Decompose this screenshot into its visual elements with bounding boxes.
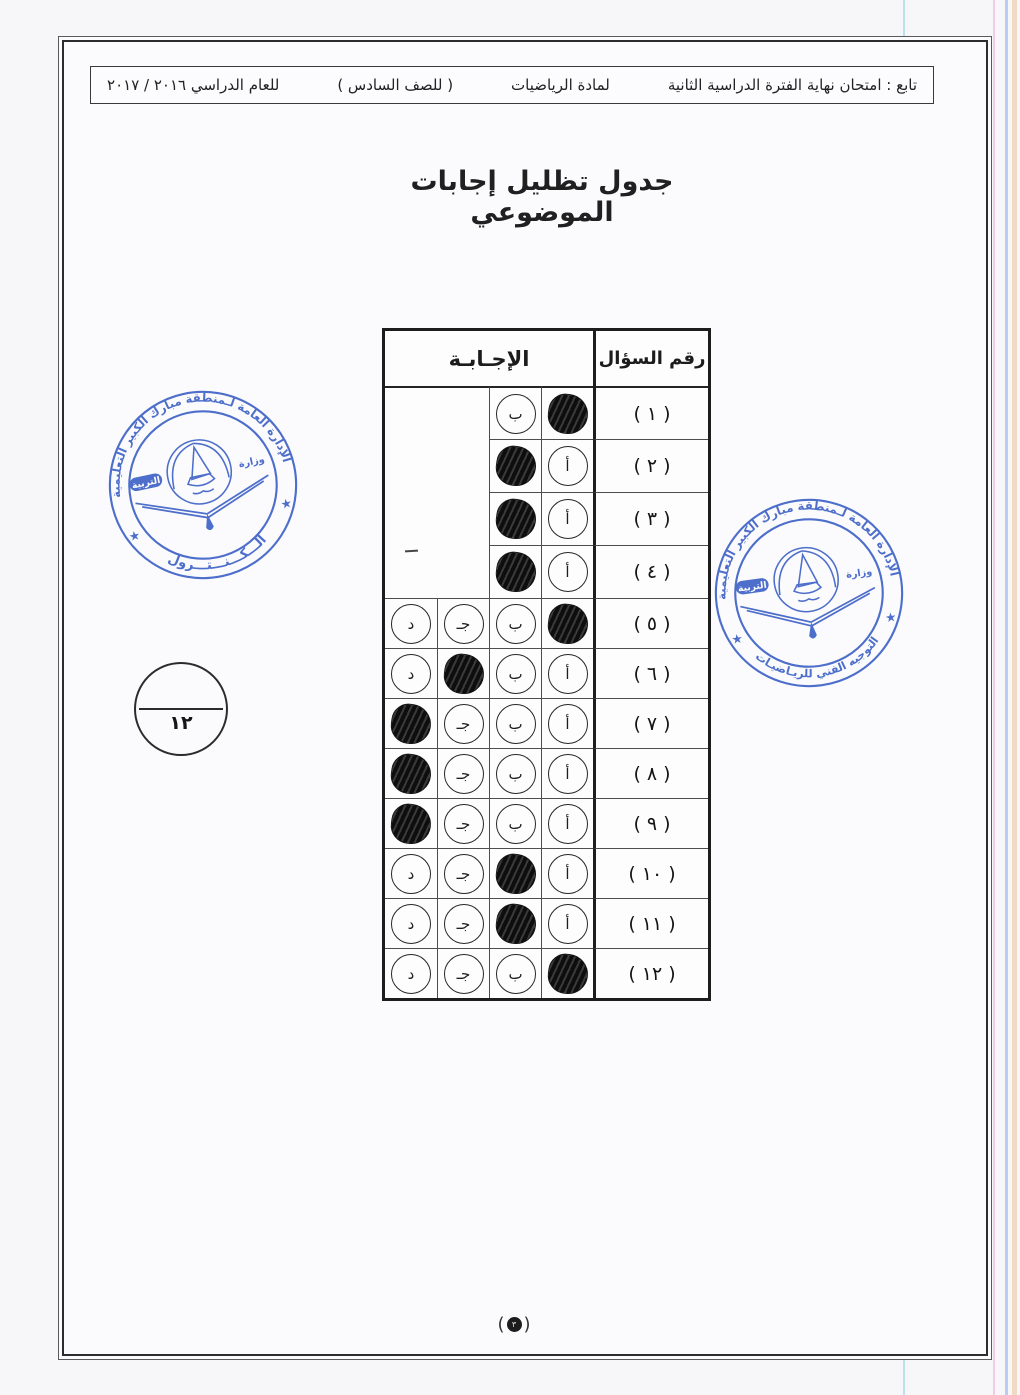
answer-cell-q7: د	[385, 698, 437, 748]
filled-answer-bubble: ب	[493, 901, 538, 946]
answer-cell-q6: أ	[541, 648, 593, 698]
answer-bubble: أ	[548, 704, 588, 744]
answer-bubble: د	[391, 854, 431, 894]
answer-bubble: د	[391, 954, 431, 994]
answer-cell-q7: ب	[489, 698, 541, 748]
header-exam-name: تابع : امتحان نهاية الفترة الدراسية الثا…	[668, 76, 917, 94]
filled-answer-bubble: أ	[545, 391, 590, 436]
answer-cell-q12: أ	[541, 948, 593, 998]
open-book-wings-icon	[142, 481, 268, 531]
scan-artifact-pink-line	[993, 0, 995, 1395]
answer-bubble: ب	[496, 394, 536, 434]
header-subject: لمادة الرياضيات	[511, 76, 610, 94]
answer-bubble: أ	[548, 499, 588, 539]
answer-bubble: أ	[548, 804, 588, 844]
grade-circle: ١٢	[134, 662, 228, 756]
answer-cell-q8: أ	[541, 748, 593, 798]
answer-bubble: أ	[548, 654, 588, 694]
question-number: ( ٨ )	[593, 748, 708, 798]
answer-cell-q6: د	[385, 648, 437, 698]
page-number: ( ٣ )	[478, 1314, 550, 1335]
answer-cell-q11: أ	[541, 898, 593, 948]
grade-fraction-line	[139, 708, 223, 710]
answer-cell-q5: ب	[489, 598, 541, 648]
pen-dash-mark	[405, 550, 418, 553]
answer-cell-q11: ب	[489, 898, 541, 948]
answer-bubble: ب	[496, 704, 536, 744]
filled-answer-bubble: ب	[493, 550, 538, 595]
filled-answer-bubble: د	[389, 701, 434, 746]
question-number: ( ١٢ )	[593, 948, 708, 998]
question-number: ( ١ )	[593, 386, 708, 439]
scan-artifact-blue-line	[1005, 0, 1008, 1395]
question-number: ( ٤ )	[593, 545, 708, 598]
filled-answer-bubble: ب	[493, 444, 538, 489]
answer-cell-q5: د	[385, 598, 437, 648]
answer-cell-q2: ب	[489, 439, 541, 492]
answer-bubble: د	[391, 654, 431, 694]
answer-shading-table: الإجـابـة رقم السؤال أب( ١ )أب( ٢ )أب( ٣…	[382, 328, 711, 1001]
answer-bubble: د	[391, 604, 431, 644]
answer-cell-q10: د	[385, 848, 437, 898]
star-icon: ★	[730, 631, 743, 647]
answer-bubble: أ	[548, 552, 588, 592]
answer-bubble: أ	[548, 904, 588, 944]
answer-bubble: جـ	[444, 954, 484, 994]
filled-answer-bubble: جـ	[441, 651, 486, 696]
header-grade-level: ( للصف السادس )	[337, 76, 453, 94]
answer-cell-q9: جـ	[437, 798, 489, 848]
filled-answer-bubble: أ	[545, 601, 590, 646]
filled-answer-bubble: ب	[493, 497, 538, 542]
answer-cell-q6: جـ	[437, 648, 489, 698]
kuwait-emblem-icon	[161, 434, 237, 510]
question-number: ( ٦ )	[593, 648, 708, 698]
answer-bubble: ب	[496, 654, 536, 694]
question-number-column-header: رقم السؤال	[593, 331, 708, 386]
answer-bubble: جـ	[444, 704, 484, 744]
page-number-open-paren: (	[497, 1314, 504, 1335]
header-school-year: للعام الدراسي ٢٠١٦ / ٢٠١٧	[107, 76, 279, 94]
answer-bubble: ب	[496, 754, 536, 794]
answer-cell-q11: جـ	[437, 898, 489, 948]
answer-cell-q12: د	[385, 948, 437, 998]
answer-cell-q10: جـ	[437, 848, 489, 898]
answer-cell-q8: ب	[489, 748, 541, 798]
answer-cell-q10: ب	[489, 848, 541, 898]
stamp-seal-graphic: الإدارة العامة لـمنطقة مبارك الكبير التع…	[699, 483, 918, 702]
answer-cell-q9: ب	[489, 798, 541, 848]
answer-bubble: جـ	[444, 904, 484, 944]
answer-bubble: ب	[496, 604, 536, 644]
answer-bubble: جـ	[444, 854, 484, 894]
answer-cell-q3: أ	[541, 492, 593, 545]
answer-cell-q12: جـ	[437, 948, 489, 998]
page-number-value: ٣	[507, 1317, 522, 1332]
star-icon: ★	[127, 527, 141, 544]
answer-cell-q7: جـ	[437, 698, 489, 748]
answer-cell-q6: ب	[489, 648, 541, 698]
exam-header-box: تابع : امتحان نهاية الفترة الدراسية الثا…	[90, 66, 934, 104]
star-icon: ★	[884, 609, 897, 625]
answer-cell-q5: جـ	[437, 598, 489, 648]
answer-cell-q5: أ	[541, 598, 593, 648]
scan-artifact-tan-line	[1012, 0, 1017, 1395]
answer-bubble: ب	[496, 804, 536, 844]
question-number: ( ٣ )	[593, 492, 708, 545]
answer-column-header: الإجـابـة	[385, 331, 593, 386]
ministry-label: وزارة	[845, 566, 872, 581]
answer-cell-q10: أ	[541, 848, 593, 898]
answer-cell-q9: أ	[541, 798, 593, 848]
question-number: ( ١٠ )	[593, 848, 708, 898]
answer-cell-q2: أ	[541, 439, 593, 492]
question-number: ( ٩ )	[593, 798, 708, 848]
answer-bubble: أ	[548, 754, 588, 794]
math-guidance-stamp: الإدارة العامة لـمنطقة مبارك الكبير التع…	[699, 483, 918, 702]
answer-bubble: أ	[548, 854, 588, 894]
star-icon: ★	[279, 495, 293, 512]
answer-cell-q4: أ	[541, 545, 593, 598]
bird-icon	[203, 513, 214, 531]
filled-answer-bubble: أ	[545, 951, 590, 996]
answer-bubble: جـ	[444, 804, 484, 844]
control-department-stamp: الإدارة العامة لـمنطقة مبارك الكبير التع…	[88, 370, 318, 600]
question-number: ( ١١ )	[593, 898, 708, 948]
filled-answer-bubble: د	[389, 751, 434, 796]
grade-score: ١٢	[136, 712, 226, 734]
page-title: جدول تظليل إجابات الموضوعي	[372, 166, 712, 228]
answer-cell-q8: جـ	[437, 748, 489, 798]
question-number: ( ٥ )	[593, 598, 708, 648]
question-number: ( ٧ )	[593, 698, 708, 748]
ministry-label: وزارة	[238, 454, 266, 470]
answer-cell-q3: ب	[489, 492, 541, 545]
filled-answer-bubble: د	[389, 801, 434, 846]
answer-cell-q1: ب	[489, 386, 541, 439]
answer-cell-q4: ب	[489, 545, 541, 598]
scanned-exam-answer-key-page: { "header": { "segments": [ "تابع : امتح…	[0, 0, 1020, 1395]
answer-cell-q1: أ	[541, 386, 593, 439]
answer-bubble: ب	[496, 954, 536, 994]
filled-answer-bubble: ب	[493, 851, 538, 896]
answer-cell-q11: د	[385, 898, 437, 948]
answer-cell-q12: ب	[489, 948, 541, 998]
empty-merged-cell	[385, 386, 489, 598]
answer-cell-q9: د	[385, 798, 437, 848]
stamp-seal-graphic: الإدارة العامة لـمنطقة مبارك الكبير التع…	[88, 370, 318, 600]
question-number: ( ٢ )	[593, 439, 708, 492]
kuwait-emblem-icon	[770, 544, 842, 616]
answer-bubble: د	[391, 904, 431, 944]
answer-bubble: جـ	[444, 754, 484, 794]
answer-cell-q7: أ	[541, 698, 593, 748]
answer-bubble: جـ	[444, 604, 484, 644]
page-number-close-paren: )	[524, 1314, 531, 1335]
answer-bubble: أ	[548, 446, 588, 486]
answer-cell-q8: د	[385, 748, 437, 798]
